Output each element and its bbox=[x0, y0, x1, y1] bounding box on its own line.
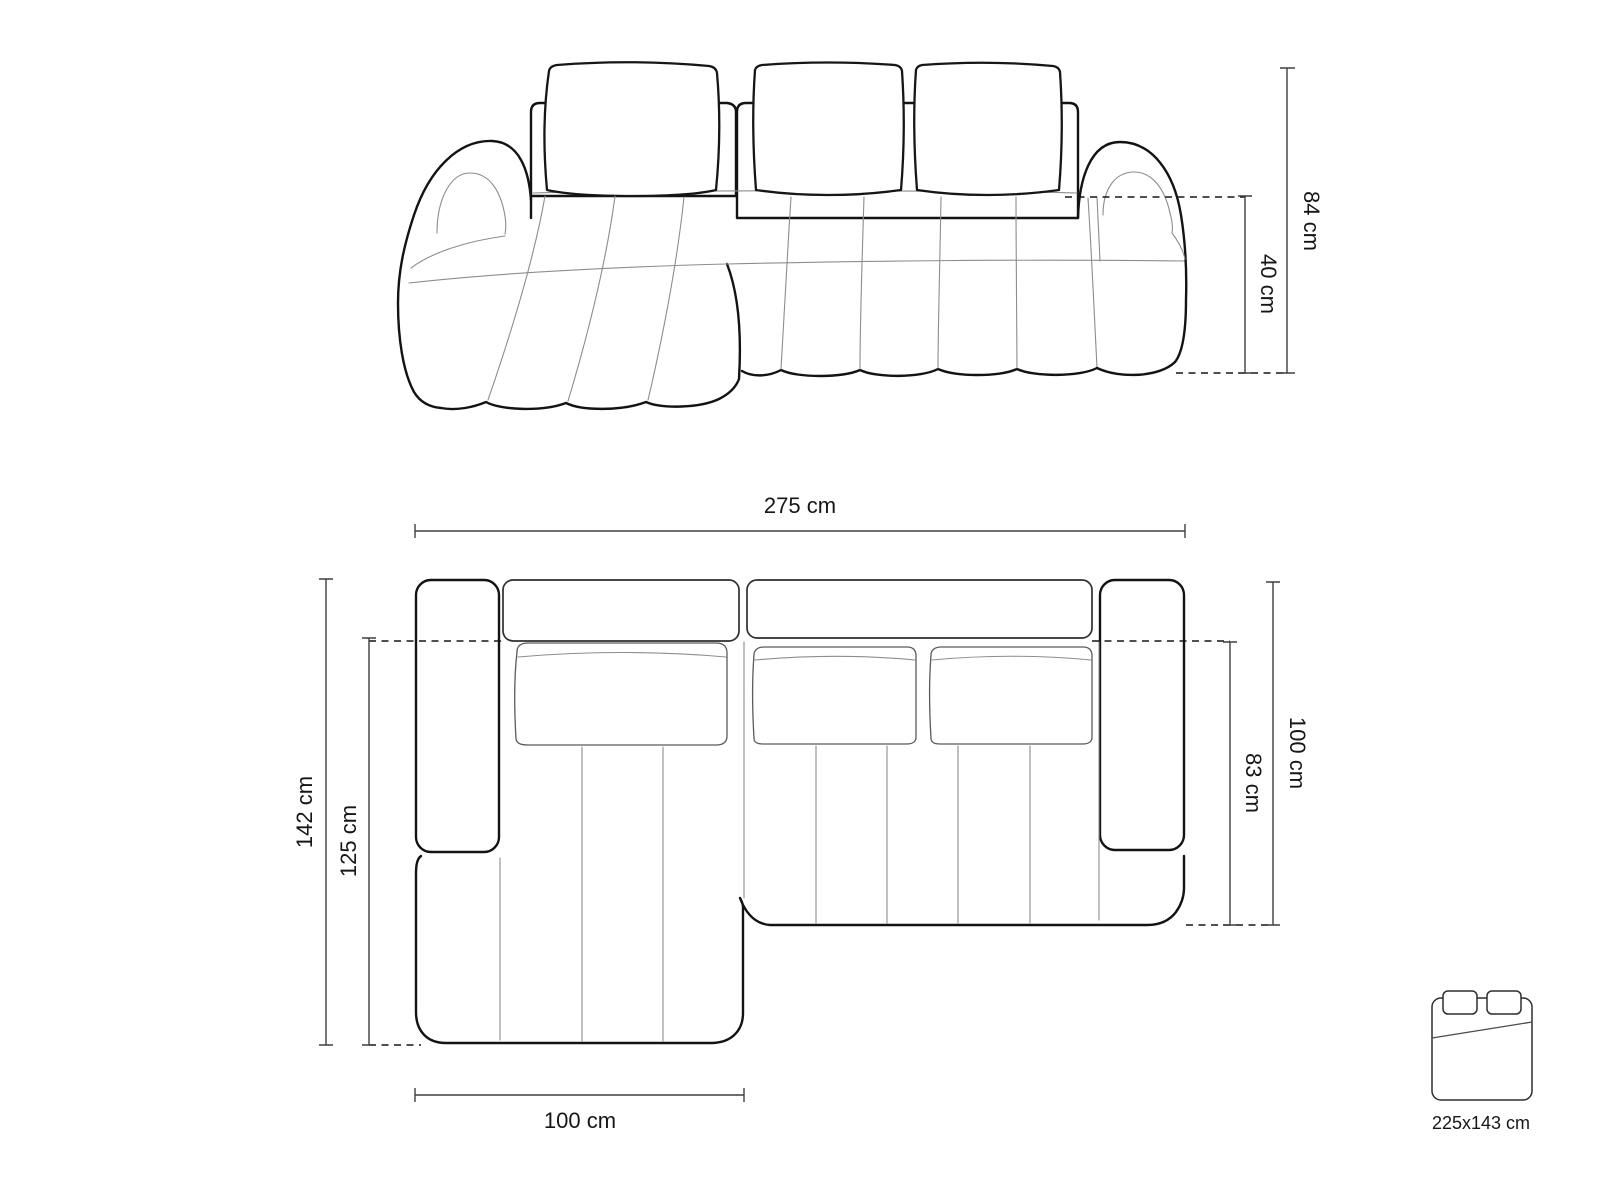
chaise-seam bbox=[488, 196, 545, 400]
dim-label-seat-height: 40 cm bbox=[1256, 254, 1281, 314]
left-arm-cushion-line bbox=[411, 236, 505, 268]
chaise-deck-line bbox=[409, 264, 726, 283]
chaise-seam bbox=[648, 197, 684, 400]
back-pillow-2 bbox=[753, 63, 904, 196]
plan-cushion-chaise bbox=[515, 643, 727, 745]
bed-pillow bbox=[1487, 991, 1521, 1014]
dim-label-height-total: 84 cm bbox=[1299, 191, 1324, 251]
back-pillow-1 bbox=[544, 62, 719, 196]
bed-icon bbox=[1432, 991, 1532, 1100]
seat-bottom-scallops bbox=[742, 368, 1097, 376]
plan-right-armrest bbox=[1100, 580, 1184, 850]
plan-cushion-right bbox=[930, 647, 1093, 744]
left-armrest-inner-arch bbox=[437, 173, 506, 234]
seat-seam bbox=[938, 197, 941, 368]
right-armrest-outline bbox=[1078, 142, 1186, 375]
dim-height-total: 84 cm bbox=[1280, 68, 1324, 373]
seat-seam bbox=[1088, 198, 1097, 367]
dim-label-seat-depth: 83 cm bbox=[1241, 753, 1266, 813]
plan-backrest-right bbox=[747, 580, 1092, 638]
back-pillow-3 bbox=[914, 63, 1062, 195]
seat-seam bbox=[1016, 197, 1017, 368]
seat-seam bbox=[860, 197, 864, 369]
dim-chaise-width: 100 cm bbox=[415, 1088, 744, 1133]
dim-label-width-total: 275 cm bbox=[764, 493, 836, 518]
seat-deck-line bbox=[727, 260, 1186, 264]
top-view: 275 cm 142 cm 125 cm 100 cm 83 cm 100 cm bbox=[292, 493, 1310, 1133]
plan-body-outline bbox=[416, 856, 1184, 1043]
plan-cushion-middle bbox=[753, 647, 917, 744]
dim-label-depth-total: 142 cm bbox=[292, 776, 317, 848]
plan-left-armrest bbox=[416, 580, 499, 852]
dim-label-chaise-length: 125 cm bbox=[336, 805, 361, 877]
diagram-canvas: 84 cm 40 cm bbox=[0, 0, 1600, 1200]
dim-seat-height: 40 cm bbox=[1238, 196, 1281, 373]
seat-seam bbox=[781, 197, 791, 369]
sofa-dimension-diagram: 84 cm 40 cm bbox=[0, 0, 1600, 1200]
dim-width-total: 275 cm bbox=[415, 493, 1185, 538]
dim-label-side-depth: 100 cm bbox=[1285, 717, 1310, 789]
sleeping-area: 225x143 cm bbox=[1432, 991, 1532, 1133]
arm-seat-boundary bbox=[1097, 197, 1100, 261]
dim-depth-total: 142 cm bbox=[292, 579, 333, 1045]
dim-seat-depth: 83 cm bbox=[1223, 642, 1266, 925]
dim-label-chaise-width: 100 cm bbox=[544, 1108, 616, 1133]
plan-backrest-left bbox=[503, 580, 739, 641]
front-view: 84 cm 40 cm bbox=[398, 62, 1324, 409]
sleeping-size-label: 225x143 cm bbox=[1432, 1113, 1530, 1133]
dim-side-depth: 100 cm bbox=[1266, 582, 1310, 925]
bed-pillow bbox=[1443, 991, 1477, 1014]
chaise-seam bbox=[568, 196, 615, 401]
dim-chaise-length: 125 cm bbox=[336, 638, 376, 1045]
